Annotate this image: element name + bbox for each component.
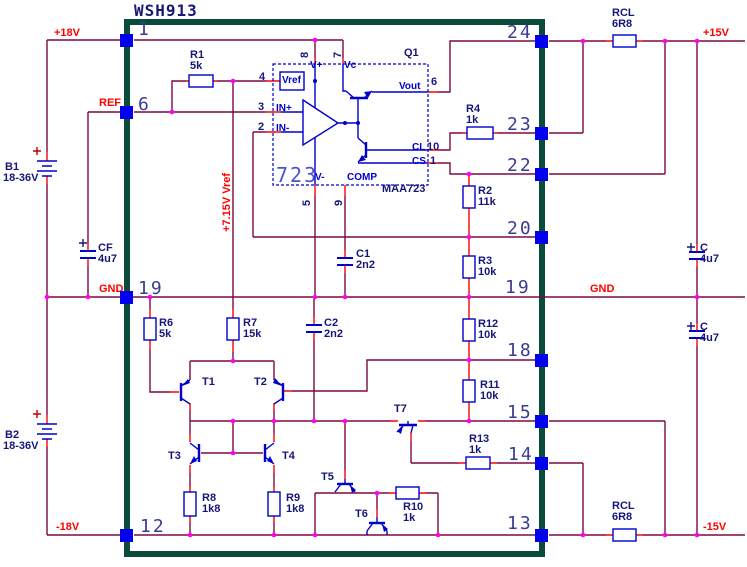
label-T5: T5: [321, 472, 334, 483]
net-label-18V: +18V: [54, 28, 80, 39]
net-label-18V: -18V: [56, 522, 79, 533]
ic-pin-number-4: 4: [259, 72, 265, 83]
pin-square-13: [535, 529, 548, 542]
pin-square-15: [535, 415, 548, 428]
pin-square-1: [120, 34, 133, 47]
pin-number-right-23: 23: [507, 114, 533, 135]
ic-pin-number-6: 6: [431, 77, 437, 88]
label-layer: WSH913+18VREFGND-18V+15VGND-15V+7.15V Vr…: [0, 0, 747, 567]
ic-pin-number-3: 3: [258, 102, 264, 113]
ic-pin-number-1: 1: [430, 156, 436, 167]
label-T3: T3: [168, 451, 181, 462]
ic-port-CL: CL: [412, 143, 425, 153]
label-R4-value-3: 1k: [466, 115, 478, 126]
pin-number-right-15: 15: [507, 402, 533, 423]
label-R11-value-9: 10k: [480, 391, 498, 402]
ic-pin-number-8: 8: [300, 52, 311, 58]
net-label-15V: -15V: [703, 522, 726, 533]
page-title: WSH913: [134, 1, 198, 20]
label-CF-value-16: 4u7: [98, 254, 117, 265]
schematic-canvas: WSH913+18VREFGND-18V+15VGND-15V+7.15V Vr…: [0, 0, 747, 567]
label-RCL-value-13: 6R8: [612, 512, 632, 523]
pin-number-right-13: 13: [507, 513, 533, 534]
label-T6: T6: [355, 509, 368, 520]
pin-square-22: [535, 168, 548, 181]
ic-pin-number-7: 7: [333, 52, 344, 58]
label-C-value-18: 4u7: [700, 333, 719, 344]
ic-port-Vref: Vref: [282, 76, 301, 86]
net-label-15V: +15V: [703, 28, 729, 39]
pin-square-20: [535, 231, 548, 244]
pin-number-left-19: 19: [138, 278, 164, 299]
pin-square-12: [120, 529, 133, 542]
pin-number-right-20: 20: [507, 218, 533, 239]
label-R7-value-5: 15k: [243, 329, 261, 340]
label-Q1: Q1: [404, 48, 419, 59]
ic-723-label: 723: [276, 163, 318, 187]
pin-number-right-18: 18: [507, 340, 533, 361]
ic-pin-number-5: 5: [302, 200, 313, 206]
label-R9-value-7: 1k8: [286, 504, 304, 515]
ic-pin-number-10: 10: [427, 142, 439, 153]
ic-port-V: V+: [310, 61, 323, 71]
ic-port-Vout: Vout: [399, 82, 420, 92]
pin-square-6: [120, 106, 133, 119]
pin-number-right-24: 24: [507, 22, 533, 43]
label-R12-value-10: 10k: [478, 330, 496, 341]
label-R2-value-1: 11k: [478, 197, 496, 208]
ic-pin-number-9: 9: [334, 200, 345, 206]
ic-port-V: V-: [315, 173, 324, 183]
label-C-value-17: 4u7: [700, 254, 719, 265]
net-label-715VVref: +7.15V Vref: [222, 173, 233, 232]
label-R1-value-0: 5k: [190, 61, 202, 72]
pin-number-right-19: 19: [505, 277, 531, 298]
ic-port-COMP: COMP: [347, 173, 377, 183]
ic-port-CS: CS: [412, 157, 426, 167]
label-R10-value-8: 1k: [403, 513, 415, 524]
pin-square-23: [535, 127, 548, 140]
net-label-GND: GND: [590, 284, 614, 295]
pin-number-right-22: 22: [507, 155, 533, 176]
label-T7: T7: [394, 404, 407, 415]
label-C2-value-15: 2n2: [324, 329, 343, 340]
ic-port-IN: IN+: [276, 104, 292, 114]
pin-number-left-12: 12: [140, 516, 166, 537]
pin-square-19: [120, 291, 133, 304]
label-R3-value-2: 10k: [478, 267, 496, 278]
label-B2-value-20: 18-36V: [3, 441, 38, 452]
ic-port-Vc: Vc: [344, 61, 356, 71]
label-C1-value-14: 2n2: [356, 260, 375, 271]
label-T4: T4: [282, 451, 295, 462]
pin-number-left-1: 1: [138, 19, 151, 40]
pin-square-24: [535, 35, 548, 48]
pin-square-18: [535, 354, 548, 367]
label-R8-value-6: 1k8: [202, 504, 220, 515]
label-RCL-value-12: 6R8: [612, 19, 632, 30]
ic-port-IN: IN-: [276, 124, 289, 134]
pin-number-right-14: 14: [508, 444, 534, 465]
label-B1-value-19: 18-36V: [3, 173, 38, 184]
ic-part-number: MAA723: [382, 184, 425, 195]
label-R6-value-4: 5k: [159, 329, 171, 340]
pin-number-left-6: 6: [138, 94, 151, 115]
pin-square-14: [535, 457, 548, 470]
ic-pin-number-2: 2: [258, 122, 264, 133]
label-T2: T2: [254, 377, 267, 388]
net-label-REF: REF: [99, 98, 121, 109]
label-T1: T1: [202, 377, 215, 388]
label-R13-value-11: 1k: [469, 445, 481, 456]
